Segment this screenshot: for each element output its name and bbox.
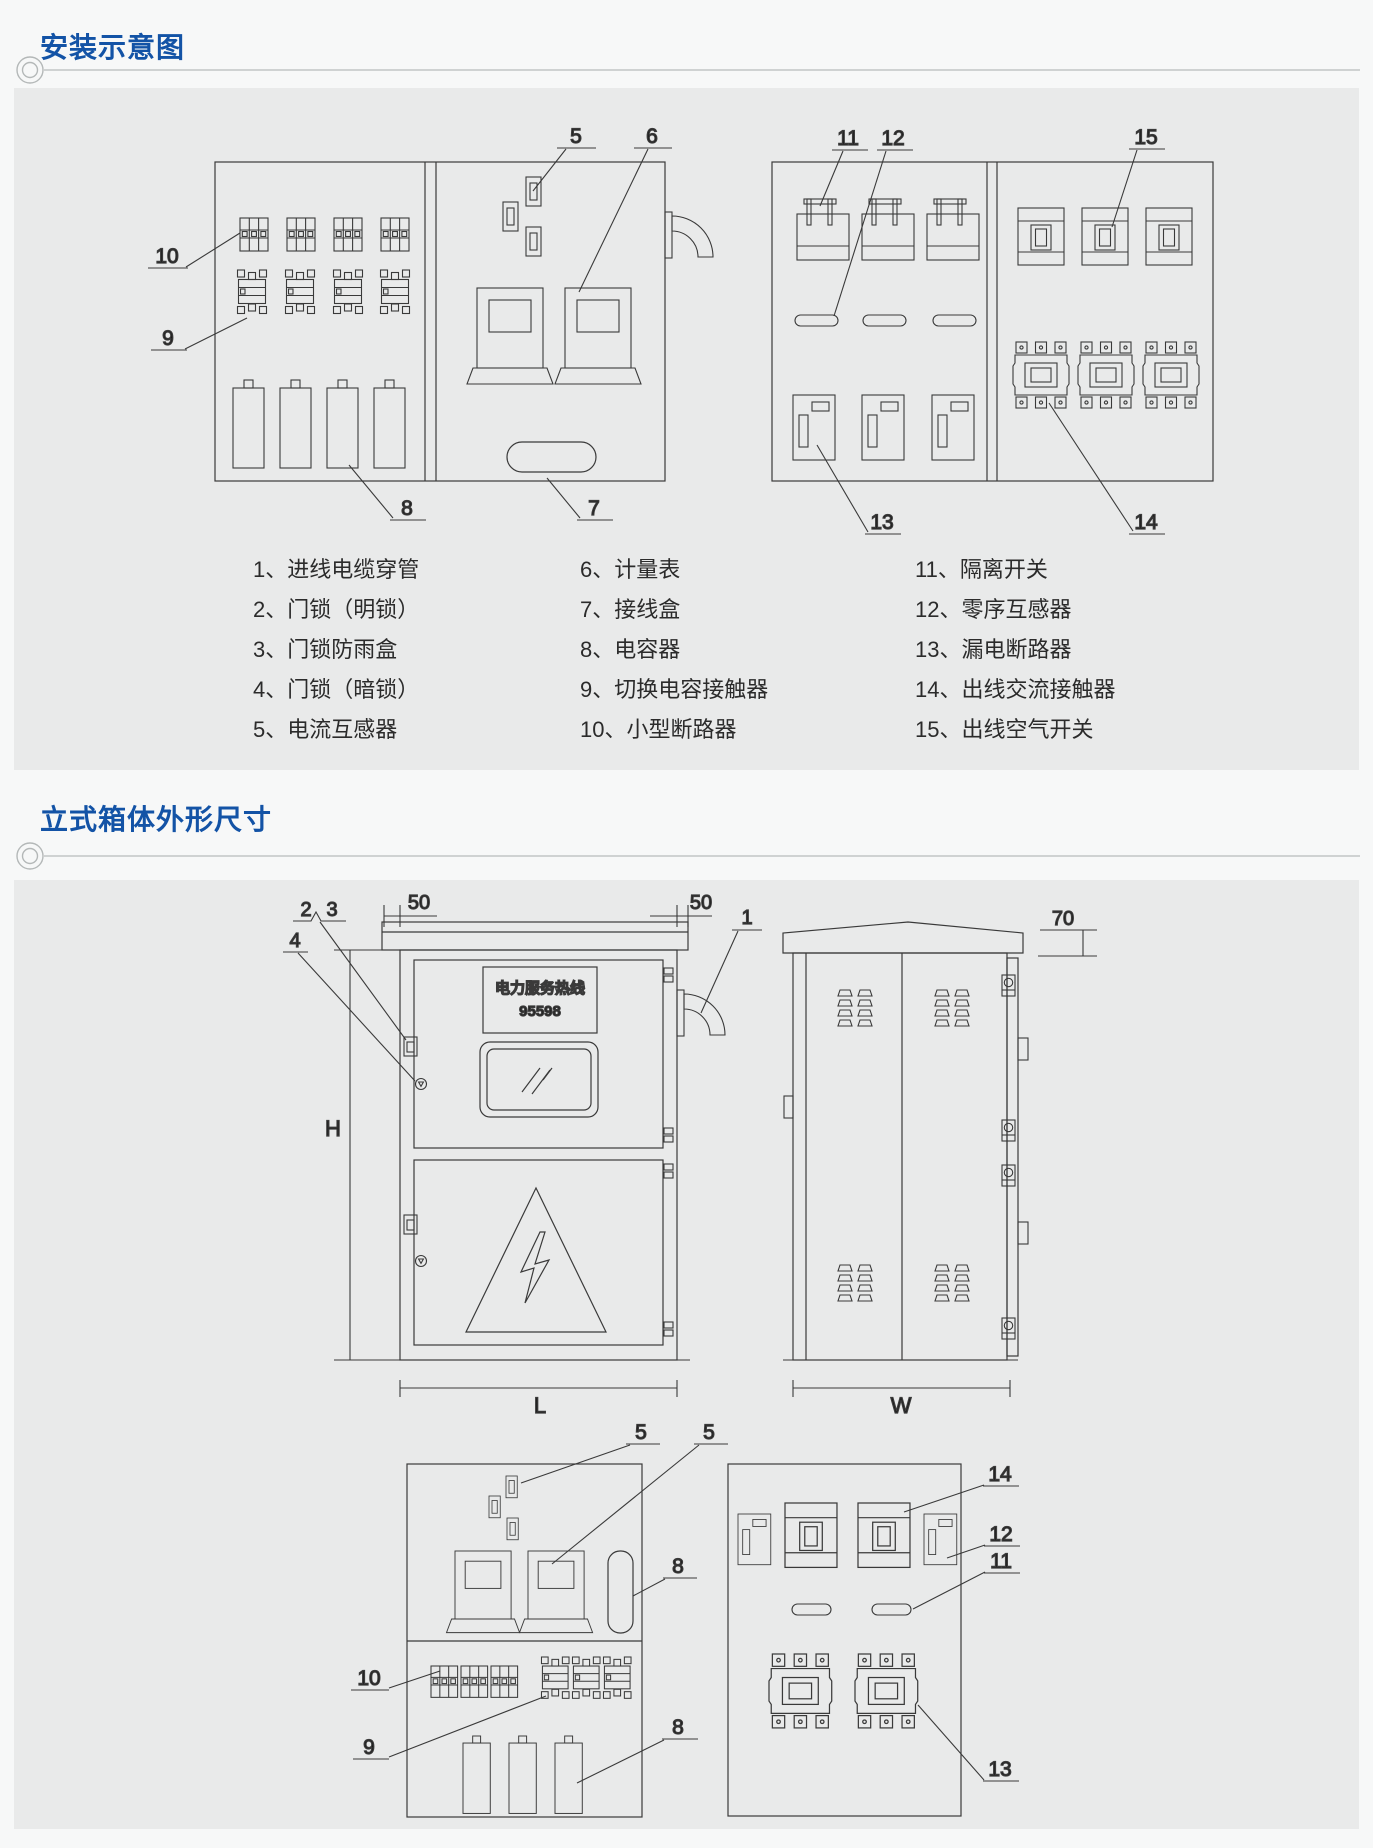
capacitor-contactor-row	[541, 1657, 631, 1698]
bottom-right-internal-view: 14 12 11 13	[728, 1463, 1020, 1816]
dim-50-left: 50	[408, 892, 430, 914]
capacitor-row	[463, 1736, 582, 1813]
callout-5: 5	[703, 1421, 715, 1444]
air-switches	[785, 1503, 910, 1567]
callout-7: 7	[588, 497, 600, 520]
dim-50-right: 50	[690, 892, 712, 914]
callout-leaders	[817, 149, 1165, 534]
callout-2: 2	[300, 899, 311, 921]
callout-14: 14	[988, 1463, 1012, 1486]
callout-8: 8	[401, 497, 413, 520]
callout-leaders	[148, 148, 672, 520]
callout-13: 13	[870, 511, 893, 534]
callout-9: 9	[363, 1736, 375, 1759]
callout-13: 13	[988, 1758, 1011, 1781]
capacitor-contactor-row	[238, 270, 410, 314]
cabinet-body	[793, 953, 1007, 1360]
section-rule-dimensions	[17, 843, 1360, 869]
leakage-breakers	[738, 1514, 957, 1565]
callout-8: 8	[672, 1716, 684, 1739]
ac-contactor-row	[1013, 342, 1199, 408]
energy-meters	[467, 288, 641, 384]
callout-3: 3	[326, 899, 337, 921]
callout-11: 11	[990, 1550, 1012, 1573]
bottom-left-internal-view: 5 5 8 10 9 8	[351, 1421, 728, 1817]
ac-contactors	[769, 1654, 918, 1728]
junction-box-shape	[507, 442, 596, 472]
side-view-drawing: W 70	[783, 908, 1097, 1418]
capacitor-row	[233, 380, 405, 468]
dim-W: W	[891, 1393, 912, 1418]
callout-14: 14	[1134, 511, 1158, 534]
service-plaque	[483, 967, 597, 1033]
callout-15: 15	[1134, 126, 1157, 149]
callout-12: 12	[989, 1523, 1012, 1546]
section-rule-install	[17, 57, 1360, 83]
vent-louvres	[838, 990, 969, 1301]
mini-breaker-row	[240, 218, 409, 251]
inspection-window	[480, 1042, 598, 1117]
roof	[382, 922, 688, 950]
isolator-row	[797, 199, 979, 260]
install-right-cabinet-drawing: 11 12 15 13 14	[772, 126, 1213, 534]
callout-10: 10	[155, 245, 178, 268]
warning-triangle	[466, 1188, 606, 1332]
install-left-cabinet-drawing: 10 9 5 6 8 7	[148, 125, 713, 520]
dim-L: L	[534, 1393, 546, 1418]
cable-conduit-shape	[665, 212, 713, 258]
callout-10: 10	[357, 1667, 380, 1690]
capacitor-pill-shape	[608, 1551, 633, 1633]
current-transformers	[489, 1476, 518, 1540]
plaque-line2: 95598	[519, 1003, 561, 1020]
callout-6: 6	[646, 125, 658, 148]
plaque-line1: 电力服务热线	[495, 979, 585, 997]
roof	[783, 922, 1023, 953]
hinges-and-handles	[784, 975, 1028, 1339]
door-hinges	[664, 968, 673, 1336]
callout-9: 9	[162, 327, 174, 350]
callout-12: 12	[881, 127, 904, 150]
callout-4: 4	[289, 930, 300, 952]
dim-70: 70	[1052, 908, 1074, 930]
callout-1: 1	[741, 907, 752, 929]
callout-8: 8	[672, 1555, 684, 1578]
zero-seq-cts	[792, 1604, 911, 1615]
front-view-drawing: 2 3 4 1 50 50 H L 电力服务热线 95598	[283, 892, 762, 1418]
dimension-lines	[334, 905, 712, 1397]
catalog-page: 安装示意图 立式箱体外形尺寸 1、进线电缆穿管 2、门锁（明锁） 3、门锁防雨盒…	[0, 0, 1373, 1848]
dim-H: H	[325, 1116, 341, 1141]
callout-5: 5	[635, 1421, 647, 1444]
zero-seq-ct-row	[795, 315, 976, 326]
line-drawing-layer: 10 9 5 6 8 7	[0, 0, 1373, 1848]
energy-meters	[447, 1551, 593, 1633]
air-switch-row	[1018, 208, 1192, 265]
callout-5: 5	[570, 125, 582, 148]
callout-11: 11	[837, 127, 859, 150]
mini-breaker-row	[431, 1666, 518, 1697]
door-locks	[404, 1037, 427, 1267]
